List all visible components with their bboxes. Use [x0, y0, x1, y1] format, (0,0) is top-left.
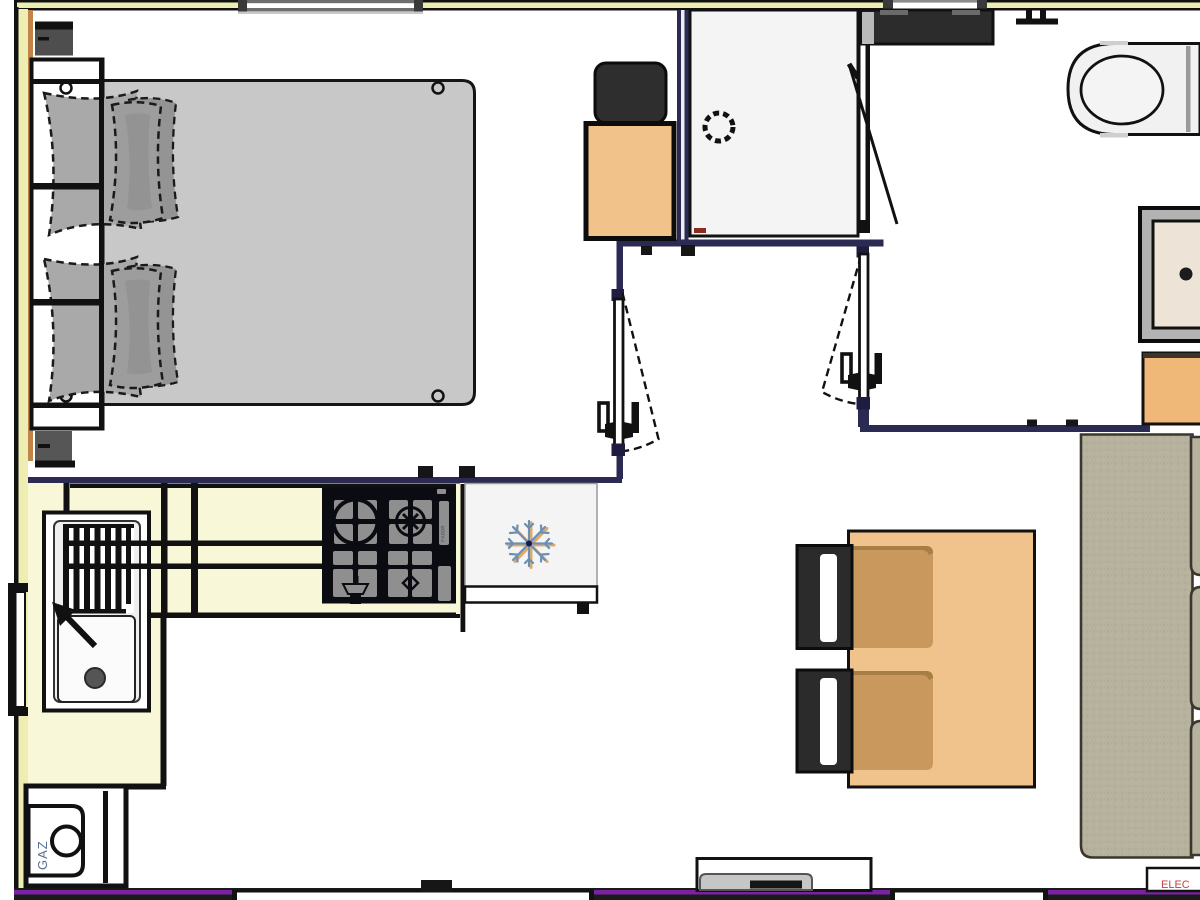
svg-text:GAZ: GAZ	[35, 840, 50, 870]
svg-text:FAGOR: FAGOR	[440, 525, 447, 542]
svg-text:ELEC: ELEC	[1161, 879, 1190, 891]
